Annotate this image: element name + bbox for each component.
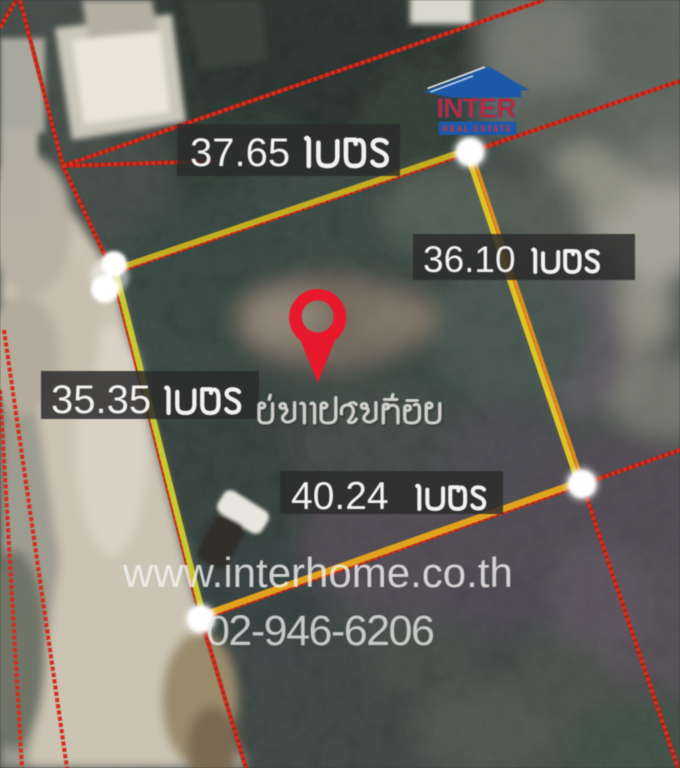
svg-text:www.interhome.co.th: www.interhome.co.th (122, 549, 513, 596)
svg-text:37.65: 37.65 (190, 131, 290, 175)
svg-text:40.24: 40.24 (291, 475, 389, 518)
svg-text:REAL ESTATE: REAL ESTATE (443, 125, 513, 134)
svg-text:36.10: 36.10 (423, 239, 516, 280)
svg-text:35.35: 35.35 (51, 378, 151, 422)
svg-text:INTER: INTER (437, 93, 517, 124)
svg-text:02-946-6206: 02-946-6206 (206, 607, 434, 655)
